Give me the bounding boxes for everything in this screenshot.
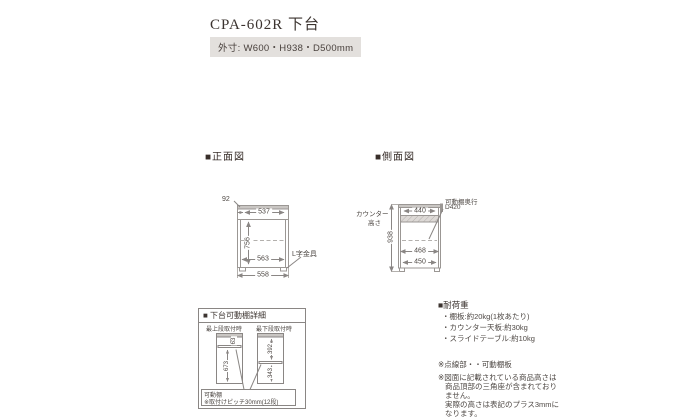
load-capacity-item: ・棚板:約20kg(1枚あたり) [442,311,530,322]
page-title: CPA-602R 下台 [210,13,320,34]
load-capacity-heading: ■耐荷重 [438,299,469,311]
l-bracket-label: L字金具 [292,249,317,259]
dotted-line-note: ※点線部・・可動棚板 [438,359,512,370]
spec-sheet: CPA-602R 下台 外寸: W600・H938・D500mm ■正面図 ■側… [0,0,680,420]
outer-size-badge: 外寸: W600・H938・D500mm [210,37,361,57]
shelf-detail-right-caption: 最下段取付時 [256,324,292,333]
front-dim-top-inner-width: 537 [256,209,272,216]
shelf-detail-left-caption: 最上段取付時 [206,324,242,333]
drawing-linework [0,0,680,420]
load-capacity-item: ・スライドテーブル:約10kg [442,333,535,344]
shelf-depth-label-line2: D420 [445,204,461,211]
detail-note-pitch: ※取付けピッチ30mm(12段) [204,397,278,406]
detail-dim-right-lower: 343 [268,367,274,379]
front-view-heading: ■正面図 [205,148,245,163]
front-dim-top-height: 92 [222,196,230,203]
side-dim-mid-depth: 468 [412,248,428,255]
counter-height-label-line2: 高さ [368,217,381,227]
height-note-line: なります。 [445,408,482,419]
front-dim-inner-width: 563 [255,256,271,263]
detail-dim-left-height: 673 [224,360,230,372]
shelf-detail-heading: ■ 下台可動棚詳細 [203,310,266,321]
front-dim-bottom-width: 558 [255,272,271,279]
side-dim-bottom-depth: 450 [412,259,428,266]
side-dim-total-height: 938 [388,230,395,244]
detail-dim-right-upper: 392 [268,343,274,355]
front-dim-inner-height: 756 [245,236,252,250]
detail-dim-left-top: 63 [231,337,237,346]
load-capacity-item: ・カウンター天板:約30kg [442,322,528,333]
side-view-heading: ■側面図 [375,148,415,163]
side-dim-top-depth: 440 [412,208,428,215]
